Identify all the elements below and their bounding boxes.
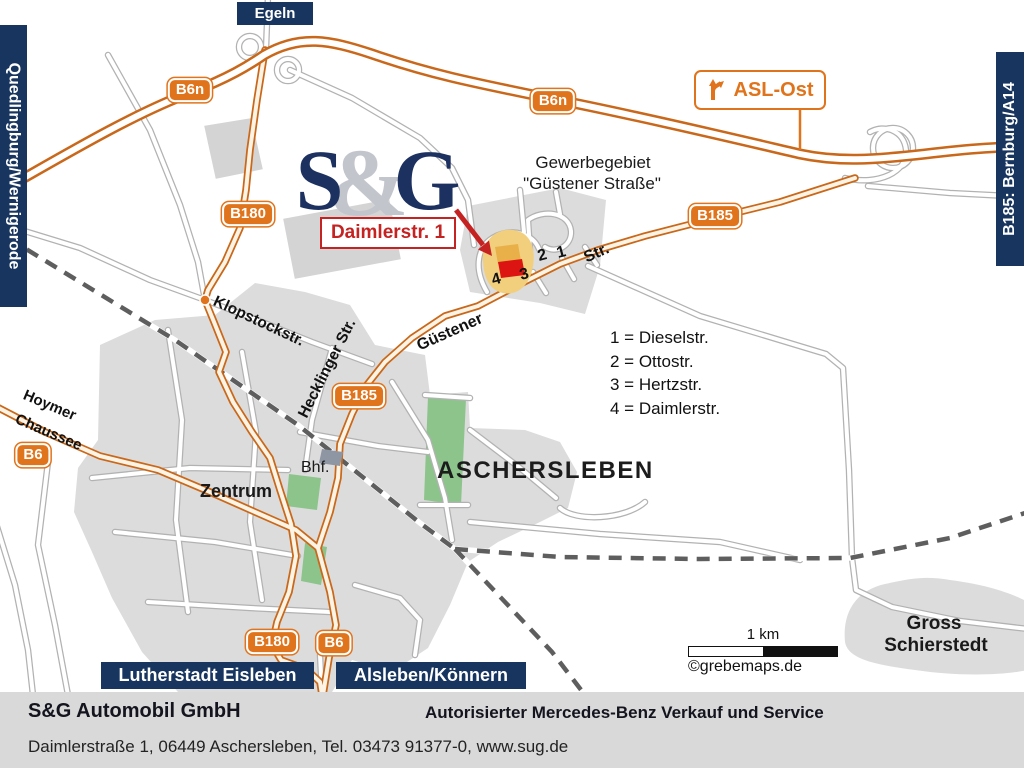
legend-item-otto: 2 = Ottostr. [610, 350, 720, 374]
road-badge-b185-northeast: B185 [689, 204, 741, 228]
destination-egeln: Egeln [237, 2, 313, 25]
road-badge-b6n-west: B6n [168, 78, 212, 102]
road-badge-b6n-east: B6n [531, 89, 575, 113]
company-tagline: Autorisierter Mercedes-Benz Verkauf und … [425, 703, 824, 723]
footer: S&G Automobil GmbH Autorisierter Mercede… [0, 692, 1024, 768]
scale-bar [688, 646, 838, 657]
city-name-aschersleben: ASCHERSLEBEN [437, 457, 654, 485]
gross-schierstedt-line1: Gross [907, 613, 962, 635]
sg-logo-s: S [296, 137, 344, 223]
road-badge-b180-north: B180 [222, 202, 274, 226]
scale-label: 1 km [688, 626, 838, 643]
legend-item-hertz: 3 = Hertzstr. [610, 373, 720, 397]
exit-sign-asl-ost: ASL-Ost [694, 70, 826, 110]
scale-bar-group: 1 km ©grebemaps.de [688, 626, 838, 676]
road-badge-b180-south: B180 [246, 630, 298, 654]
park-bhf [286, 474, 321, 510]
industrial-area-label-line2: "Güstener Straße" [523, 174, 661, 194]
map-credit: ©grebemaps.de [688, 658, 838, 676]
sg-logo-g: G [393, 137, 460, 223]
gross-schierstedt-line2: Schierstedt [884, 635, 987, 657]
legend-item-daimler: 4 = Daimlerstr. [610, 397, 720, 421]
address-flag: Daimlerstr. 1 [320, 217, 456, 249]
map-graphic [0, 0, 1024, 692]
exit-sign-label: ASL-Ost [734, 79, 814, 102]
street-legend: 1 = Dieselstr. 2 = Ottostr. 3 = Hertzstr… [610, 326, 720, 420]
company-address: Daimlerstraße 1, 06449 Aschersleben, Tel… [28, 737, 568, 757]
zentrum-label: Zentrum [200, 481, 272, 502]
motorway-b6n-fill [0, 41, 1024, 196]
sg-logo: S & G [288, 138, 468, 222]
destination-bernburg-a14: B185: Bernburg/A14 [996, 52, 1024, 266]
junction-dot [200, 295, 210, 305]
road-badge-b6-west: B6 [15, 443, 50, 467]
legend-item-diesel: 1 = Dieselstr. [610, 326, 720, 350]
map-stage: Egeln Quedlingburg/Wernigerode B185: Ber… [0, 0, 1024, 768]
station-label: Bhf. [301, 459, 329, 477]
road-badge-b6-south: B6 [316, 631, 351, 655]
motorway-exit-icon [707, 79, 729, 101]
destination-quedlinburg: Quedlingburg/Wernigerode [0, 25, 27, 307]
motorway-b6n-casing [0, 41, 1024, 196]
scale-bar-dark-half [763, 647, 837, 656]
destination-alsleben-koennern: Alsleben/Könnern [336, 662, 526, 689]
company-name: S&G Automobil GmbH [28, 700, 241, 723]
destination-lutherstadt-eisleben: Lutherstadt Eisleben [101, 662, 314, 689]
road-badge-b185-town: B185 [333, 384, 385, 408]
industrial-area-label-line1: Gewerbegebiet [535, 153, 650, 173]
